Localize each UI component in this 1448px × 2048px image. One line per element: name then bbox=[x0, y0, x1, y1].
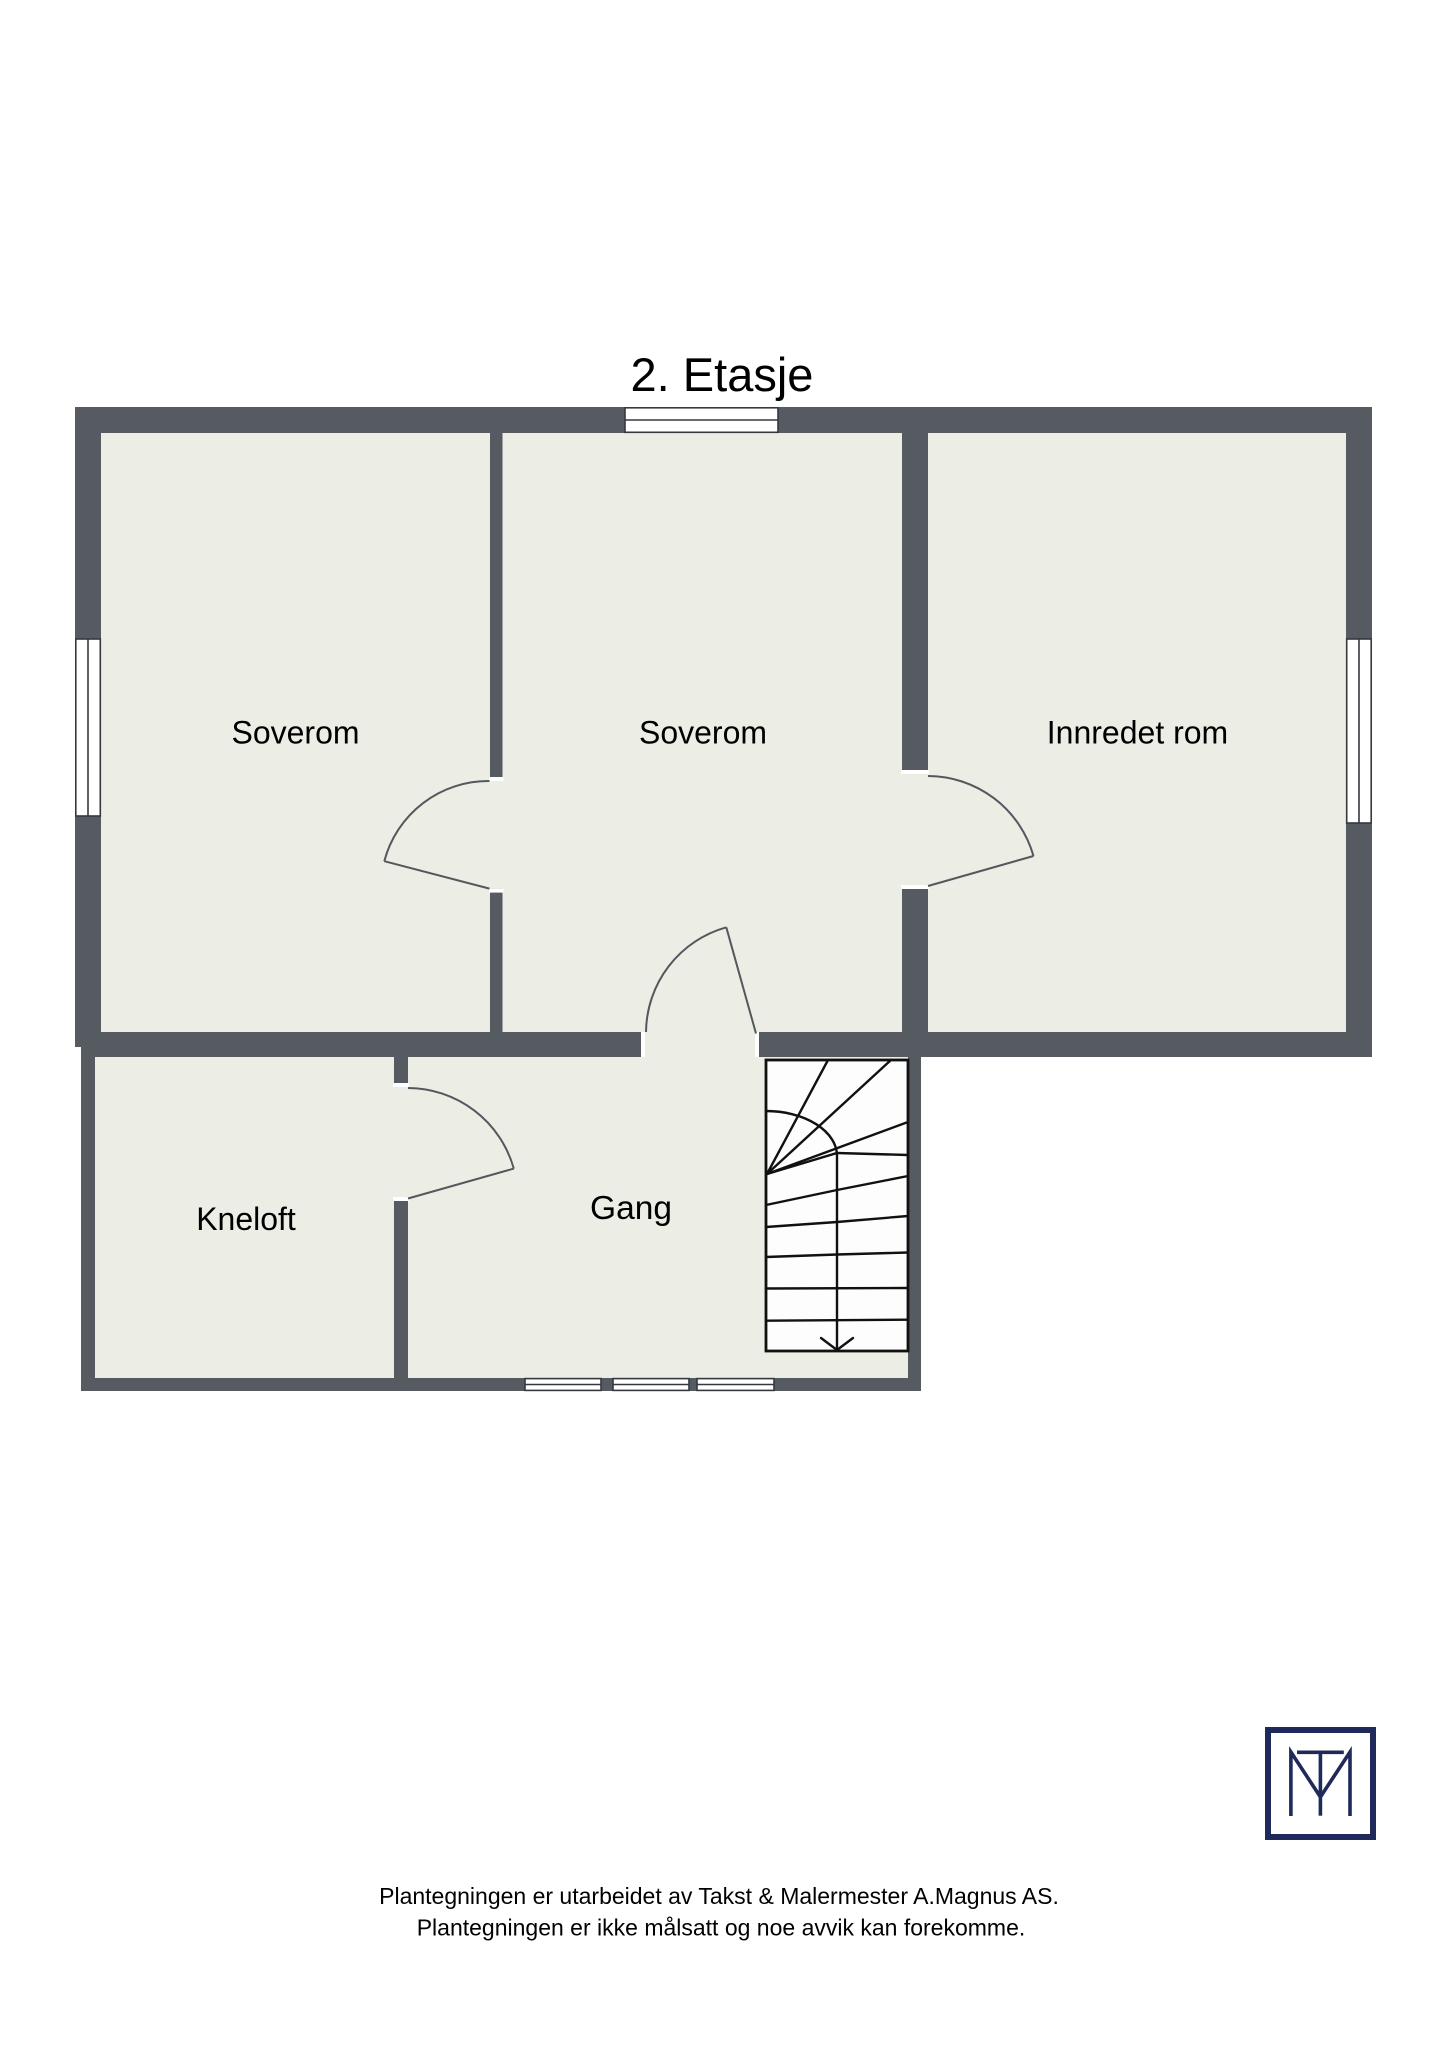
svg-text:Soverom: Soverom bbox=[231, 715, 359, 751]
svg-text:Soverom: Soverom bbox=[639, 715, 767, 751]
svg-text:2. Etasje: 2. Etasje bbox=[631, 348, 814, 401]
svg-text:Innredet rom: Innredet rom bbox=[1047, 715, 1228, 751]
svg-text:Plantegningen er utarbeidet av: Plantegningen er utarbeidet av Takst & M… bbox=[379, 1883, 1059, 1909]
svg-text:Kneloft: Kneloft bbox=[196, 1201, 296, 1237]
svg-text:Plantegningen er ikke målsatt: Plantegningen er ikke målsatt og noe avv… bbox=[417, 1915, 1026, 1941]
svg-text:Gang: Gang bbox=[590, 1190, 672, 1227]
